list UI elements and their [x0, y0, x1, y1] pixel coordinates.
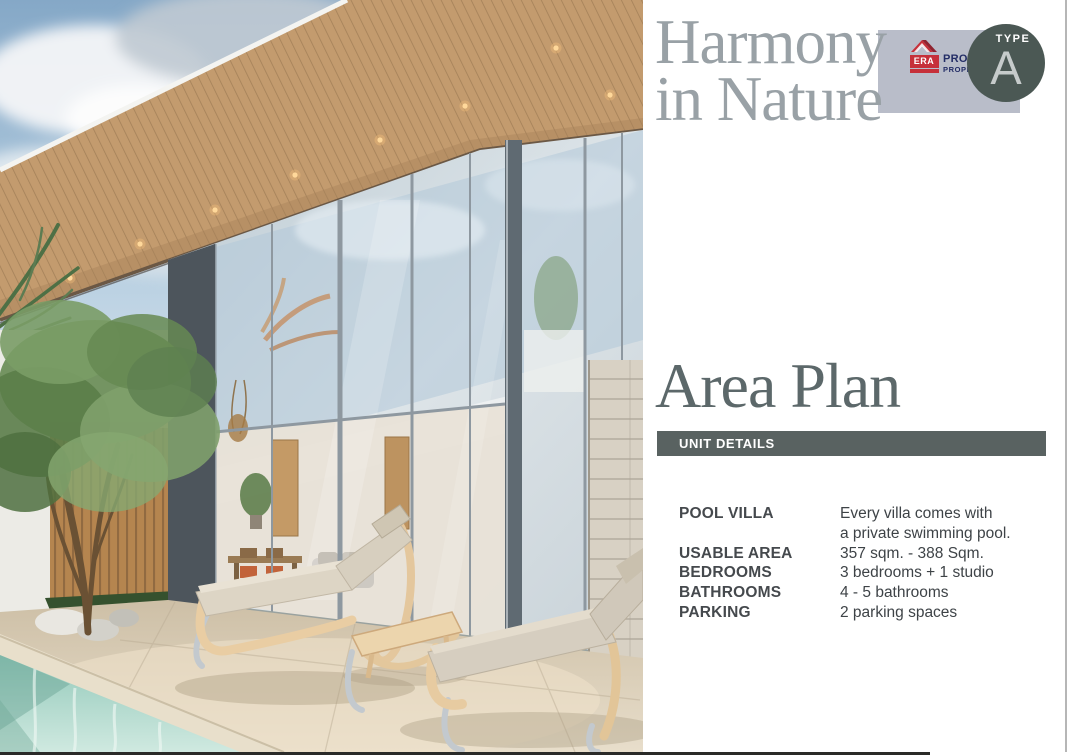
era-wordmark: ERA	[910, 55, 939, 68]
hero-title-line1: Harmony	[655, 14, 886, 71]
hero-title-line2: in Nature	[655, 71, 886, 128]
detail-row-pool-villa: POOL VILLA Every villa comes with a priv…	[679, 504, 1043, 544]
unit-details-table: POOL VILLA Every villa comes with a priv…	[679, 504, 1043, 623]
detail-row-bedrooms: BEDROOMS 3 bedrooms + 1 studio	[679, 563, 1043, 583]
era-logo-left: ERA	[908, 38, 940, 73]
detail-row-usable-area: USABLE AREA 357 sqm. - 388 Sqm.	[679, 544, 1043, 564]
hero-title: Harmony in Nature	[655, 14, 886, 128]
era-house-roof-icon	[908, 38, 940, 55]
type-badge: TYPE A	[967, 24, 1045, 102]
type-badge-value: A	[990, 44, 1021, 92]
section-heading: Area Plan	[655, 354, 900, 418]
detail-row-bathrooms: BATHROOMS 4 - 5 bathrooms	[679, 583, 1043, 603]
page-right-border	[1065, 0, 1067, 752]
unit-details-bar: UNIT DETAILS	[657, 431, 1046, 456]
villa-photo-illustration	[0, 0, 643, 752]
detail-row-parking: PARKING 2 parking spaces	[679, 603, 1043, 623]
era-tagline-strip	[910, 69, 939, 73]
villa-photo	[0, 0, 643, 752]
brochure-page: Harmony in Nature ERA PROMPT PROPERTY TY…	[0, 0, 1071, 755]
